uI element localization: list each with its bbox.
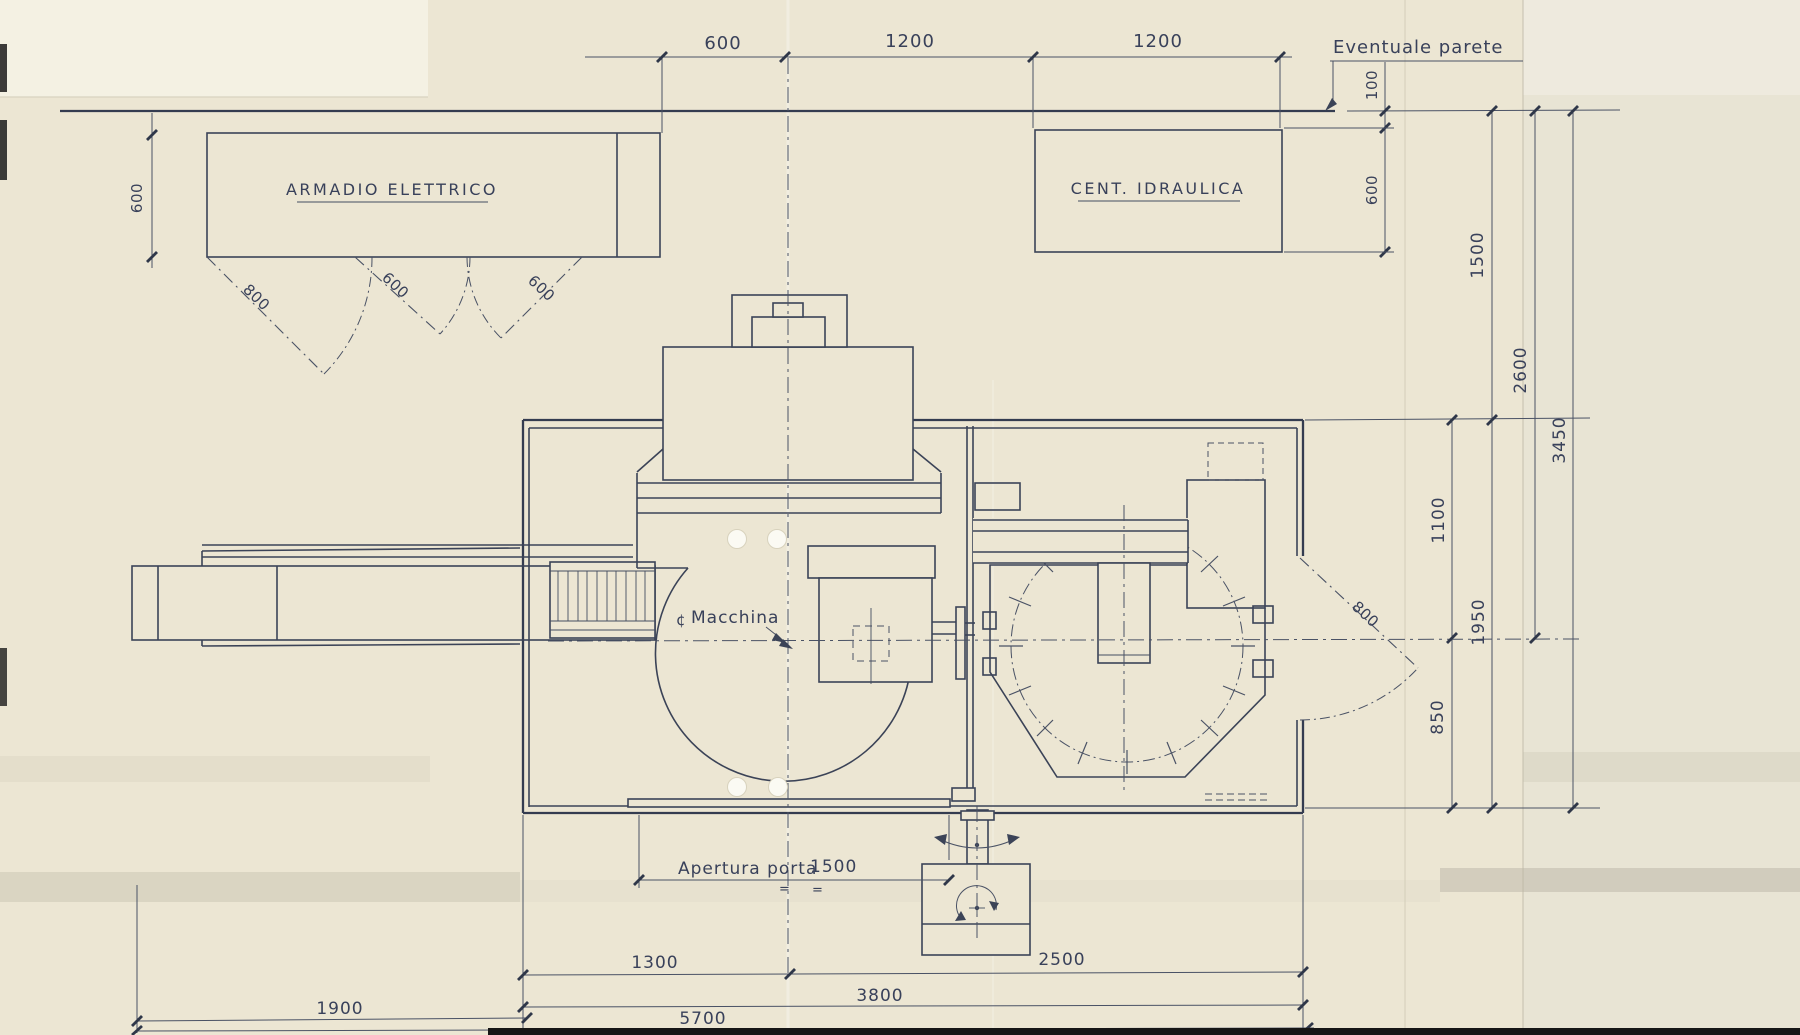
- dim-top-1200b: 1200: [1133, 31, 1183, 52]
- sliding-door-panel: [628, 799, 950, 807]
- label-macchina: Macchina: [691, 608, 779, 628]
- dim-top-1200a: 1200: [885, 31, 935, 52]
- shaft-flange: [956, 607, 965, 679]
- centreline-mark: ¢: [676, 611, 686, 629]
- dim-bottom-3800: 3800: [856, 986, 903, 1006]
- dim-bottom-2500: 2500: [1038, 950, 1085, 970]
- spindle-head: [819, 578, 932, 682]
- dim-right-1950: 1950: [1469, 598, 1489, 645]
- scan-edge-bottom: [488, 1028, 1800, 1035]
- label-cent-idraulica: CENT. IDRAULICA: [1071, 179, 1246, 198]
- paper-top-left-sheet: [0, 0, 428, 97]
- dim-right-850: 850: [1428, 699, 1448, 734]
- punch-hole: [769, 778, 788, 797]
- dim-bottom-5700: 5700: [679, 1009, 726, 1029]
- dim-bottom-1300: 1300: [631, 953, 678, 973]
- floor-plan-drawing: 600 1200 1200 Eventuale parete 100 600 C…: [0, 0, 1800, 1035]
- dim-right-1500: 1500: [1468, 231, 1488, 278]
- punch-hole: [728, 778, 747, 797]
- dim-right-1100: 1100: [1429, 496, 1449, 543]
- label-armadio-elettrico: ARMADIO ELETTRICO: [286, 180, 498, 199]
- label-eventuale-parete: Eventuale parete: [1333, 37, 1503, 58]
- table-drive-housing: [1187, 480, 1265, 608]
- spindle-rail: [808, 546, 935, 578]
- dim-armadio-600: 600: [128, 183, 146, 213]
- dim-apertura-1500: 1500: [810, 857, 857, 877]
- dim-right-3450: 3450: [1550, 416, 1570, 463]
- dim-right-2600: 2600: [1511, 346, 1531, 393]
- dim-parete-100: 100: [1363, 70, 1381, 100]
- label-apertura-porta: Apertura porta: [678, 859, 817, 879]
- punch-hole: [728, 530, 747, 549]
- conveyor-hatch: [550, 562, 655, 638]
- punch-hole: [768, 530, 787, 549]
- dim-bottom-1900: 1900: [316, 999, 363, 1019]
- eq-mark-1: =: [779, 882, 790, 897]
- dim-top-600: 600: [704, 33, 741, 54]
- dim-idraulica-600: 600: [1363, 175, 1381, 205]
- eq-mark-2: =: [812, 883, 823, 898]
